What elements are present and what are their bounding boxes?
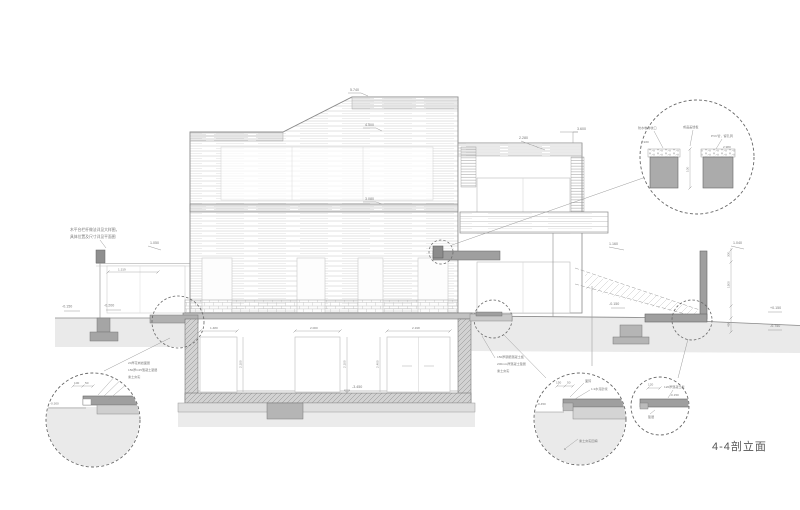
lean-concrete [178,403,475,412]
level-ground-left-b: -0.200 [104,304,114,308]
basement-wall-left [185,319,198,405]
level-fence-flag [148,246,161,250]
circle-b-dim-b: 50 [85,381,89,385]
circle-b-slab [83,396,140,405]
floor-band [190,204,458,212]
circle-b-earth [46,407,140,468]
detail-circle-b: 100 50 -0.300 20厚花岗岩面层 150厚C25混凝土垫层 素土夯实 [46,360,157,468]
basement-door-1 [200,337,237,392]
fence-footing-pier [97,318,110,332]
circle-b-label2: 150厚C25混凝土垫层 [128,367,157,372]
basement-wall-right [458,319,471,405]
wing-cut-wall-left [461,147,476,187]
gravel-right [701,149,735,157]
ret-dim-a: 300 [727,252,731,257]
circle-b-step [83,399,91,405]
gate-panel [107,266,185,313]
level-canopy: 2.280 [519,136,528,140]
fence-note-line2: 具体位置及尺寸详见平面图 [70,234,116,239]
parapet-block-left [650,157,678,188]
basement-door-2 [295,337,340,392]
circle-c-level: -0.450 [537,402,546,406]
drawing-title: 4-4剖立面 [712,439,767,453]
footing-lower [613,337,649,344]
roof-fascia [352,97,458,109]
circle-d-dim-a: 120 [648,383,653,387]
flag-ridge [348,93,368,96]
gf-slab [183,313,472,319]
slope-hatch [585,273,697,318]
earth-below-basement [178,412,475,427]
dim-door2-label: 2.000 [310,326,318,330]
fence-note-line1: 木平台栏杆做法详见大样图， [70,227,119,232]
circle-d-label1: 120厚混凝土板 [664,384,685,389]
level-ret-right-a: +0.150 [770,306,781,310]
level-ret-right-b: -0.750 [770,324,780,328]
dim-door1-h-label: 2.100 [239,360,243,368]
level-parapet: 4.500 [365,123,374,127]
fence-footing-pad [90,332,118,341]
circle-c-leader-dot [564,448,566,450]
circle-b-base [97,405,140,414]
dim-door3-h-label: 2.400 [376,360,380,368]
ret-dim-b: 1500 [727,281,731,288]
circle-c-label1: 面砖 [585,378,591,383]
circle-d-level: -0.150 [670,393,679,397]
level-retwall-top: 1.040 [733,241,742,245]
retaining-wall-base [645,314,707,322]
canopy-planks [461,213,608,233]
main-building: 5.740 4.500 3.080 [185,88,470,313]
flag-retwall [731,246,744,249]
retaining-wall-stem [700,251,707,319]
circle-c-dim-b: 50 [567,381,571,385]
circle-b-label1: 20厚花岗岩面层 [128,360,150,365]
drawing-sheet: 木平台栏杆做法详见大样图， 具体位置及尺寸详见平面图 1.050 1.319 -… [0,0,800,510]
level-ground-left-a: -0.150 [62,305,72,309]
basement: 1.480 2.000 2.198 2.100 2.100 2.400 -3.4… [150,296,512,419]
fence-note-leader [100,240,106,248]
circle-a-label1: 防水卷材收口 [638,125,657,130]
level-terrace-right: 1.160 [609,242,618,246]
gate-dim: 1.319 [118,268,126,272]
level-wing-roof: 3.600 [577,127,586,131]
level-ridge: 5.740 [350,88,359,92]
right-terrace-cap [476,312,502,316]
circle-d-label2: 垫层 [648,414,654,419]
slab-note-line1: 150厚钢筋混凝土板 [497,354,524,359]
slab-note-line2: 200mm厚混凝土垫层 [497,361,526,366]
section-drawing: 木平台栏杆做法详见大样图， 具体位置及尺寸详见平面图 1.050 1.319 -… [0,0,800,510]
pit [267,403,303,419]
dim-door2-h-label: 2.100 [343,360,347,368]
wing-cut-wall-right [571,157,584,212]
circle-c-slab [573,407,626,419]
basement-floor-slab [185,393,471,403]
base-course [185,300,470,313]
wing-window-lower [477,262,570,313]
circle-b-level: -0.300 [50,402,59,406]
ribbon-window [221,147,433,200]
parapet-band [190,132,283,141]
detail-circle-c: 面砖 1:2水泥砂浆 素土夯实回填 -0.450 150 50 [534,373,626,465]
fence-post [96,250,105,263]
circle-a-level-right: 2.980 [723,145,731,149]
circle-b-label3: 素土夯实 [128,374,140,379]
circle-d-step [640,403,648,409]
flag-wing-roof [560,132,578,143]
level-fence-top: 1.050 [150,241,159,245]
gravel-left [648,149,680,157]
circle-a-level-left: 2.930 [641,140,649,144]
canopy-bracket [433,246,443,258]
slab-note-line3: 素土夯实 [497,368,509,373]
circle-b-dim-a: 100 [74,381,79,385]
circle-c-label2: 1:2水泥砂浆 [591,386,608,391]
ret-dim-c: 450 [727,322,731,327]
circle-c-dim-a: 150 [556,381,561,385]
flag-terrace [609,247,624,250]
circle-a-label2: 成品盖缝板 [683,124,698,129]
circle-c-step [563,403,573,411]
circle-c-label3: 素土夯实回填 [579,438,598,443]
dim-door3-label: 2.198 [412,326,420,330]
parapet-block-right [703,157,733,188]
wing-fascia [458,143,582,156]
circle-a-label3: PVC管，留孔洞 [711,133,733,138]
detail-circle-a: 100 防水卷材收口 成品盖缝板 PVC管，留孔洞 2.930 2.980 [638,100,754,214]
level-ground-right: -0.150 [609,302,619,306]
dim-door1-label: 1.480 [210,326,218,330]
level-floor2: 3.080 [365,197,374,201]
footing-upper [620,325,642,337]
detail-circle-d: 120厚混凝土板 垫层 -0.150 120 [631,377,689,435]
level-basement: -3.450 [352,385,362,389]
joint-dim-label: 100 [686,167,690,172]
